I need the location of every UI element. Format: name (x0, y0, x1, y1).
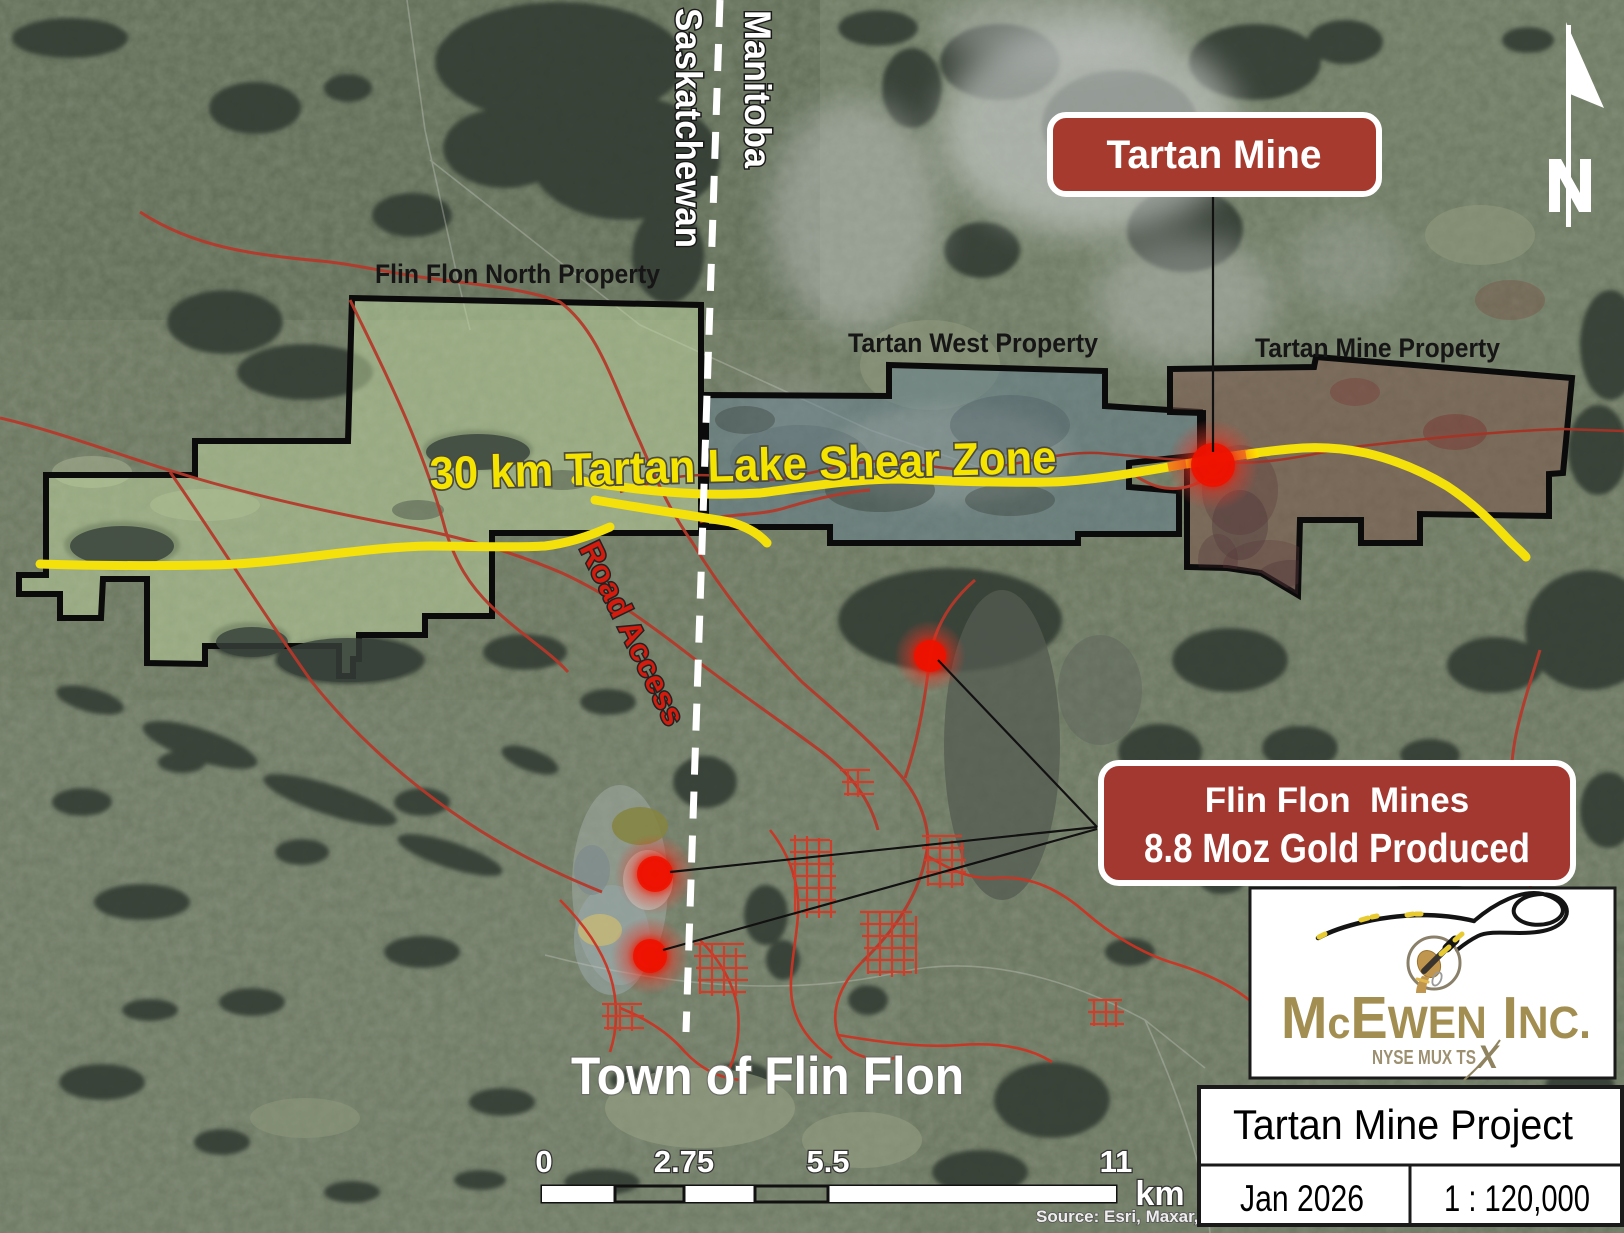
svg-text:8.8 Moz Gold Produced: 8.8 Moz Gold Produced (1144, 825, 1530, 871)
svg-text:0: 0 (535, 1144, 552, 1179)
svg-text:Jan 2026: Jan 2026 (1240, 1178, 1364, 1219)
svg-text:Source: Esri, Maxar, I: Source: Esri, Maxar, I (1036, 1207, 1208, 1226)
svg-text:Flin Flon Mines: Flin Flon Mines (1205, 781, 1469, 820)
svg-text:1 : 120,000: 1 : 120,000 (1444, 1178, 1590, 1219)
svg-text:Tartan Mine Project: Tartan Mine Project (1233, 1101, 1573, 1148)
svg-text:Tartan West Property: Tartan West Property (848, 328, 1098, 358)
svg-text:Manitoba: Manitoba (737, 10, 778, 168)
svg-text:2.75: 2.75 (654, 1144, 714, 1179)
svg-text:Flin Flon North Property: Flin Flon North Property (375, 259, 660, 289)
svg-text:Town of Flin Flon: Town of Flin Flon (571, 1047, 964, 1106)
svg-text:11: 11 (1100, 1144, 1133, 1179)
svg-text:Saskatchewan: Saskatchewan (668, 8, 709, 248)
svg-text:Tartan Mine: Tartan Mine (1107, 133, 1322, 177)
svg-text:5.5: 5.5 (806, 1144, 849, 1179)
svg-text:NYSE MUX TS: NYSE MUX TS (1372, 1047, 1476, 1069)
svg-text:Tartan Mine Property: Tartan Mine Property (1255, 333, 1500, 363)
